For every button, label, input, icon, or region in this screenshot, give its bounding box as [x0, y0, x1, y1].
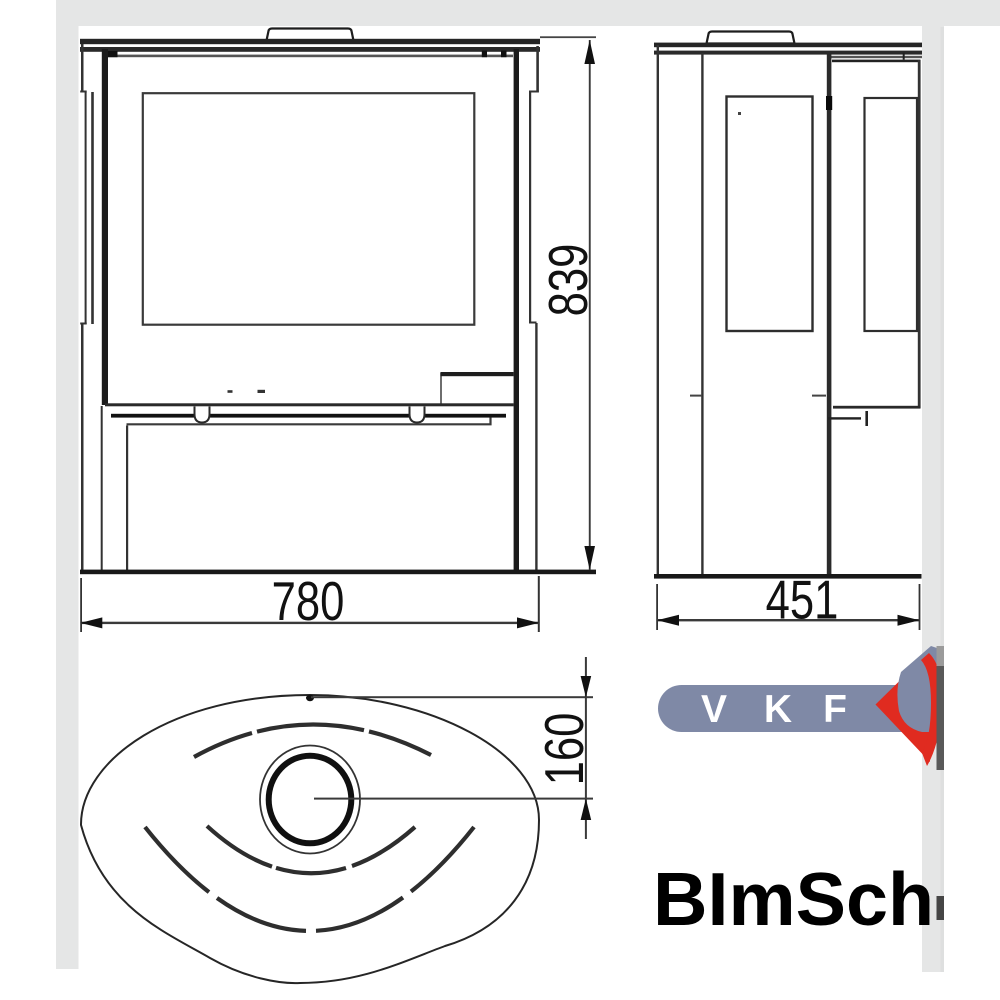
svg-text:451: 451: [766, 570, 839, 631]
svg-text:F: F: [823, 688, 847, 731]
svg-text:K: K: [764, 688, 792, 731]
svg-text:839: 839: [538, 244, 599, 317]
svg-text:V: V: [701, 688, 727, 731]
svg-text:160: 160: [534, 713, 595, 786]
svg-text:780: 780: [272, 571, 345, 632]
svg-text:BImSch: BImSch: [653, 857, 934, 941]
